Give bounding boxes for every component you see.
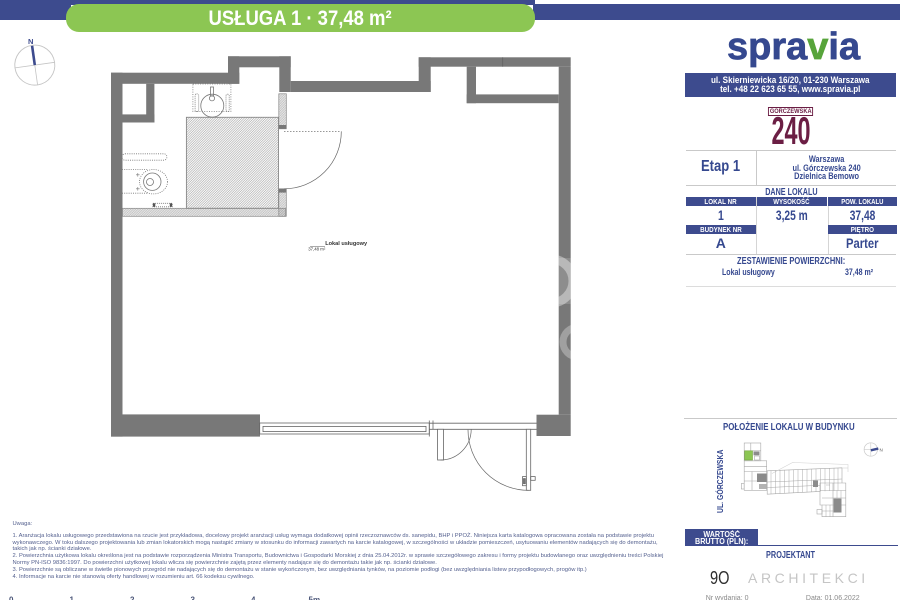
svg-text:3: 3 (191, 595, 196, 600)
svg-text:N: N (880, 448, 883, 453)
svg-text:N: N (28, 37, 33, 46)
svg-text:5m: 5m (309, 595, 321, 600)
svg-text:Lokal usługowy: Lokal usługowy (325, 241, 368, 247)
svg-text:37,48 m²: 37,48 m² (308, 246, 326, 251)
svg-text:1: 1 (70, 595, 75, 600)
svg-text:4: 4 (251, 595, 256, 600)
svg-text:0: 0 (9, 595, 14, 600)
svg-text:2: 2 (130, 595, 135, 600)
